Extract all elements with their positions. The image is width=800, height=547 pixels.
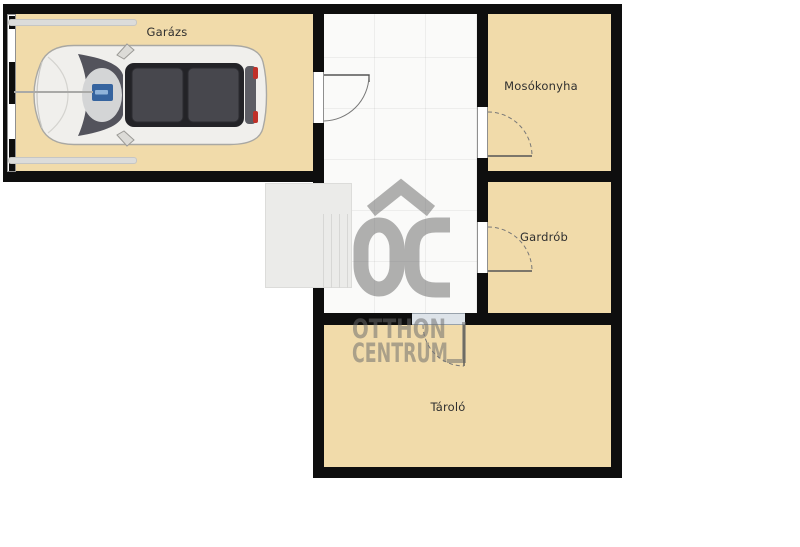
floor-plan-page: OTTHON CENTRUM Garázs Mosókonyha Gardrób…	[0, 0, 800, 547]
oc-logo-letter-c	[412, 225, 450, 290]
laundry-door-arc	[488, 112, 532, 156]
watermark-line2: CENTRUM	[352, 338, 448, 369]
oc-logo-roof-icon	[371, 187, 431, 211]
garage-room-label: Garázs	[147, 25, 188, 39]
garage-hall-door-leaf	[324, 75, 369, 82]
oc-logo-bracket	[447, 322, 464, 361]
watermark: OTTHON CENTRUM	[352, 187, 464, 369]
garage-hall-door-arc	[324, 76, 369, 121]
storage-room-label: Tároló	[430, 400, 465, 414]
oc-logo-letter-o	[361, 225, 397, 289]
laundry-room-label: Mosókonyha	[504, 79, 578, 93]
floor-plan: OTTHON CENTRUM Garázs Mosókonyha Gardrób…	[0, 0, 632, 480]
wardrobe-room-label: Gardrób	[520, 230, 568, 244]
